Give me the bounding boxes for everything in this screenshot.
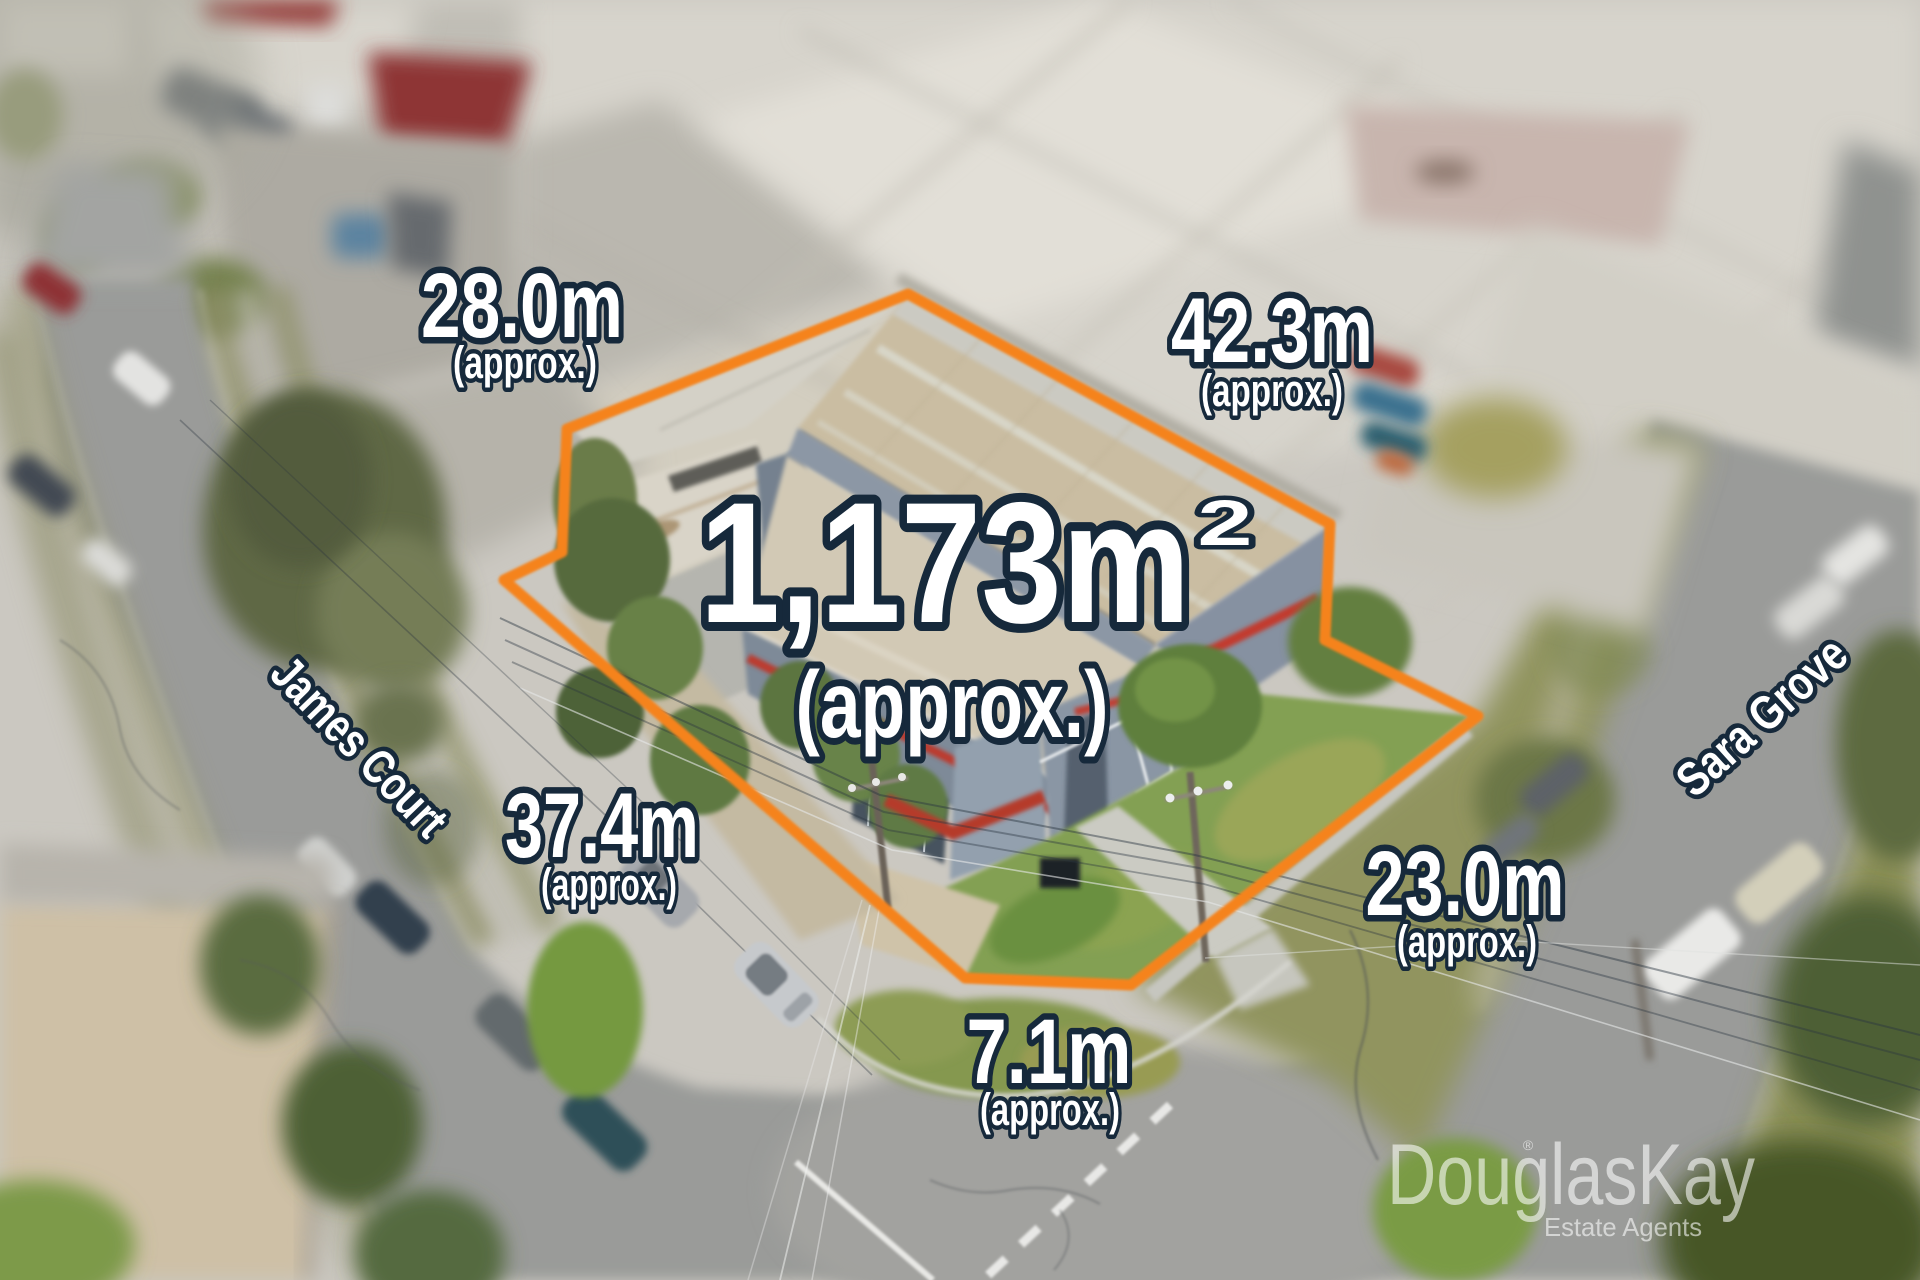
svg-text:(approx.): (approx.) — [453, 337, 597, 388]
svg-text:2: 2 — [1197, 487, 1252, 559]
svg-text:®: ® — [1523, 1137, 1534, 1153]
svg-text:(approx.): (approx.) — [1397, 916, 1537, 967]
svg-text:DouglasKay: DouglasKay — [1387, 1127, 1755, 1223]
svg-text:(approx.): (approx.) — [1201, 365, 1343, 416]
svg-text:(approx.): (approx.) — [541, 859, 677, 910]
svg-text:(approx.): (approx.) — [980, 1084, 1120, 1135]
svg-text:Estate Agents: Estate Agents — [1544, 1212, 1702, 1242]
svg-text:(approx.): (approx.) — [796, 652, 1109, 758]
svg-text:1,173m: 1,173m — [700, 467, 1191, 659]
